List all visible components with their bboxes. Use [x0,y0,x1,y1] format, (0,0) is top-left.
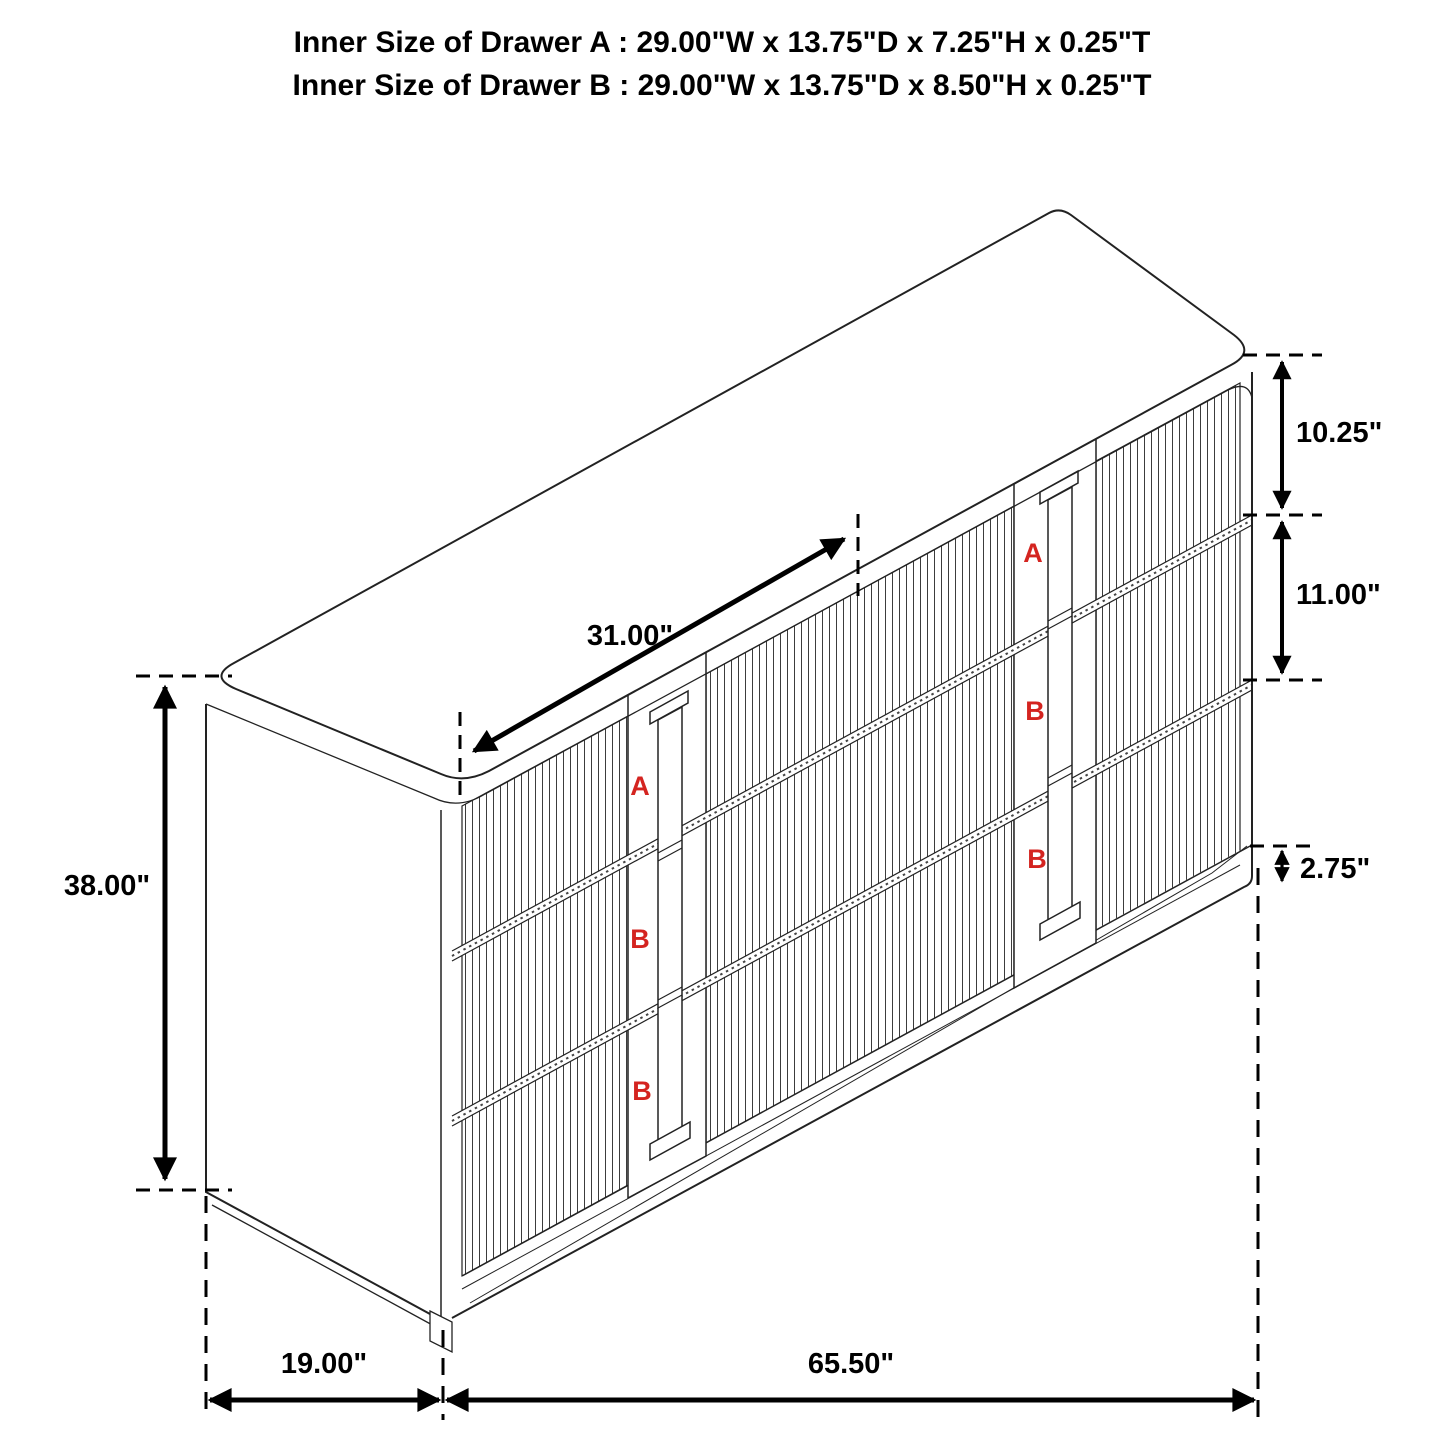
drawer-width-label: 31.00" [587,620,673,652]
cabinet-height-label: 38.00" [64,870,150,902]
title-line-drawer-b: Inner Size of Drawer B : 29.00"W x 13.75… [293,69,1152,102]
furniture-dimension-diagram: Inner Size of Drawer A : 29.00"W x 13.75… [0,0,1445,1445]
drawer-b-height-label: 11.00" [1296,579,1381,611]
drawer-label-left-b1: B [630,924,650,954]
fluted-section-left [462,716,628,1276]
fluted-section-right [1096,383,1240,930]
cabinet-drawing: A B B A B B [206,210,1252,1352]
side-panel [206,704,452,1352]
title-line-drawer-a: Inner Size of Drawer A : 29.00"W x 13.75… [294,26,1151,59]
drawer-label-left-a: A [630,771,650,801]
dimension-cabinet-depth: 19.00" [210,1348,439,1400]
drawer-label-right-b2: B [1027,844,1047,874]
drawer-label-right-b1: B [1025,696,1045,726]
drawer-label-left-b2: B [632,1076,652,1106]
front-left-foot [430,1311,452,1352]
cabinet-depth-label: 19.00" [281,1348,367,1380]
cabinet-width-label: 65.50" [808,1348,894,1380]
dimension-drawer-a-height: 10.25" [1243,355,1382,515]
dimension-cabinet-width: 65.50" [447,1348,1254,1400]
dimension-base-height: 2.75" [1250,846,1370,885]
base-height-label: 2.75" [1300,853,1370,885]
handle-left-bar [658,707,682,1149]
drawer-label-right-a: A [1023,538,1043,568]
handle-right-bar [1048,487,1072,929]
dimension-drawer-b-height: 11.00" [1243,522,1381,680]
drawer-a-height-label: 10.25" [1296,417,1382,449]
diagram-title: Inner Size of Drawer A : 29.00"W x 13.75… [293,26,1152,102]
